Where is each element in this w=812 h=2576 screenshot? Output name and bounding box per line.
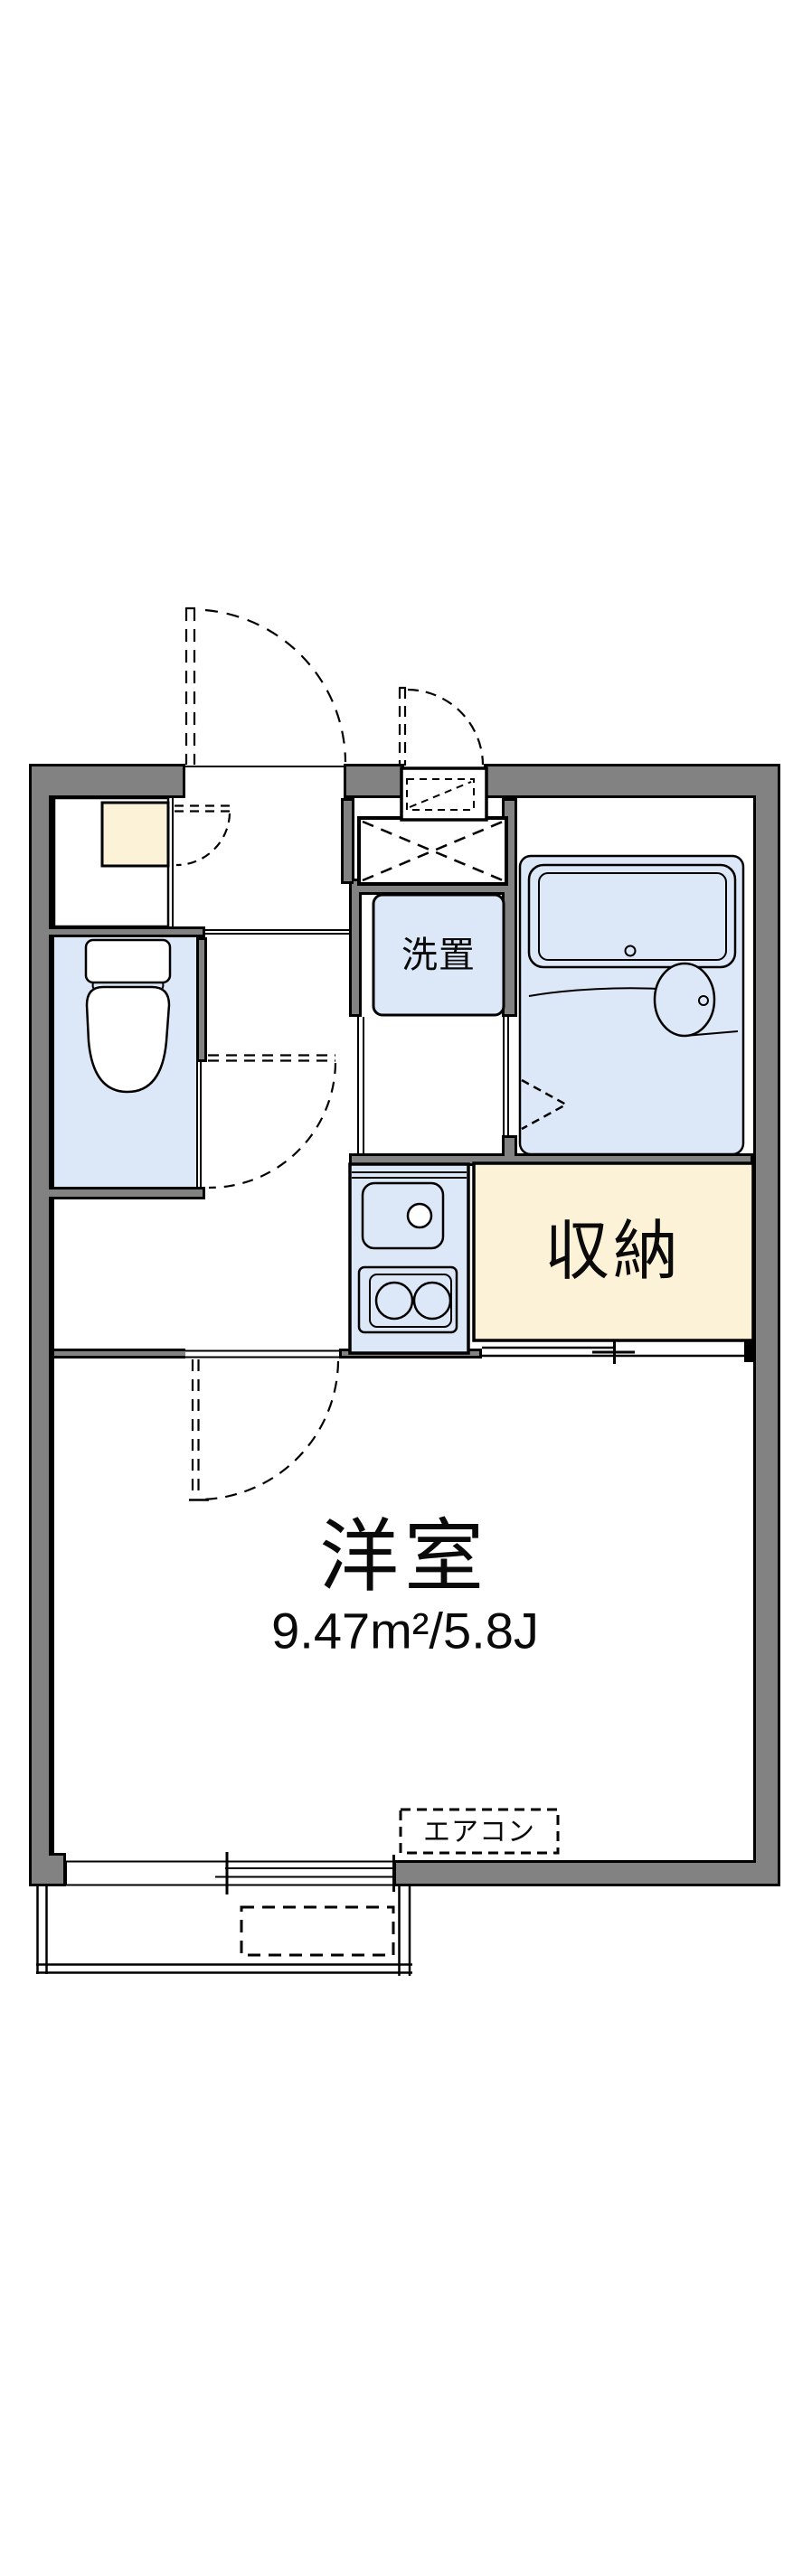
laundry-label: 洗置 bbox=[401, 935, 476, 975]
floor-plan-drawing: 洗置 収納 bbox=[0, 0, 812, 2576]
outdoor-unit-box bbox=[241, 1907, 393, 1955]
hall-door-leaf bbox=[208, 1056, 335, 1061]
sink-drain bbox=[408, 1204, 431, 1227]
air-conditioner-label: エアコン bbox=[423, 1818, 535, 1847]
laundry-space: 洗置 bbox=[373, 895, 504, 1015]
entrance-door-swing bbox=[205, 610, 345, 762]
room-door-threshold bbox=[185, 1351, 339, 1358]
hall-door-swing bbox=[209, 1063, 335, 1188]
entrance-door-leaf bbox=[185, 608, 195, 765]
main-room-door-leaf bbox=[193, 1359, 199, 1499]
main-room: 洋室 9.47m²/5.8J bbox=[271, 1512, 539, 1659]
wash-basin bbox=[655, 964, 714, 1036]
floor-plan-page: 洗置 収納 bbox=[0, 0, 812, 2576]
doors bbox=[175, 608, 483, 1500]
toilet-door bbox=[197, 1062, 201, 1187]
kitchen bbox=[350, 1164, 468, 1353]
storage-room-door-swing bbox=[176, 813, 230, 865]
meter-box-door-swing bbox=[408, 690, 483, 765]
balcony bbox=[36, 1886, 412, 1976]
entrance-alcove bbox=[401, 768, 486, 820]
toilet-bowl bbox=[87, 987, 169, 1092]
main-room-door-swing bbox=[198, 1361, 338, 1500]
meter-box-door-leaf bbox=[399, 688, 406, 766]
bathroom bbox=[520, 856, 743, 1154]
kitchen-counter bbox=[350, 1164, 468, 1353]
closet: 収納 bbox=[474, 1163, 753, 1340]
entrance-step-line bbox=[205, 930, 352, 934]
air-conditioner: エアコン bbox=[401, 1810, 558, 1853]
toilet-tank bbox=[86, 940, 170, 982]
corridor-wall bbox=[358, 1017, 364, 1154]
bath-door-frame bbox=[504, 1017, 508, 1136]
entrance-box bbox=[359, 818, 506, 884]
closet-label: 収納 bbox=[544, 1216, 682, 1288]
main-room-area: 9.47m²/5.8J bbox=[271, 1603, 539, 1659]
toilet bbox=[86, 940, 170, 1092]
main-room-label: 洋室 bbox=[319, 1512, 489, 1602]
storage-room bbox=[54, 798, 168, 926]
window bbox=[66, 1852, 395, 1894]
cabinet bbox=[102, 803, 168, 866]
storage-room-door-leaf bbox=[175, 806, 231, 812]
